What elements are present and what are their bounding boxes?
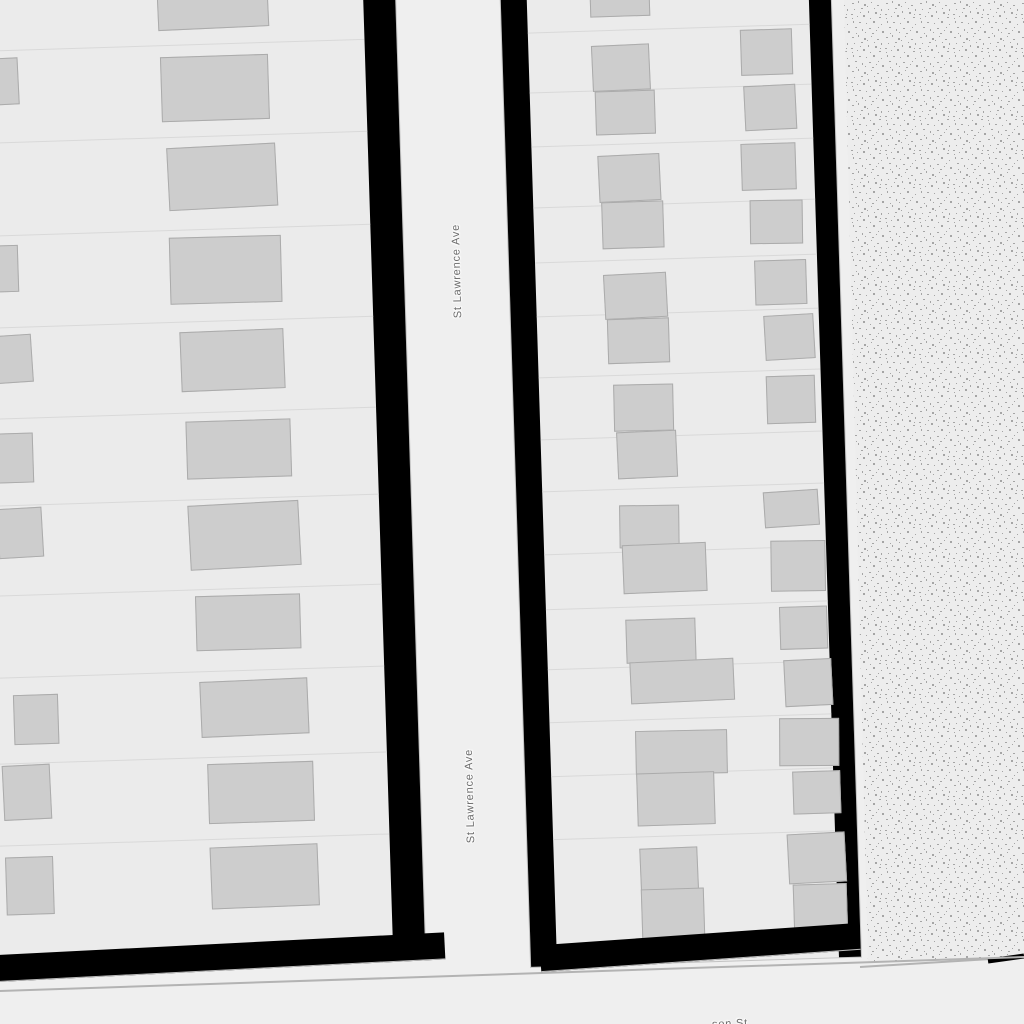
building-footprint: [207, 761, 315, 824]
building-footprint: [2, 764, 53, 821]
cross-street-name-label: son St: [695, 1016, 765, 1024]
parcel-line: [0, 131, 367, 146]
building-footprint: [616, 430, 678, 480]
parcel-line: [0, 407, 376, 422]
building-footprint: [157, 0, 270, 31]
building-footprint: [625, 618, 696, 664]
building-footprint: [622, 542, 708, 594]
building-footprint: [766, 375, 816, 425]
building-footprint: [792, 770, 841, 814]
building-footprint: [179, 328, 285, 392]
building-footprint: [185, 418, 292, 479]
building-footprint: [763, 489, 820, 529]
parcel-line: [0, 224, 370, 239]
building-footprint: [0, 57, 20, 106]
building-footprint: [635, 729, 728, 775]
building-footprint: [783, 658, 833, 707]
building-footprint: [636, 771, 716, 826]
city-block-west: [0, 0, 425, 969]
building-footprint: [210, 843, 320, 909]
building-footprint: [0, 245, 19, 293]
parcel-line: [0, 316, 373, 331]
building-footprint: [195, 593, 301, 651]
building-footprint: [787, 831, 848, 884]
parcel-line: [0, 584, 382, 599]
street-name-label: St Lawrence Ave: [449, 211, 464, 331]
building-footprint: [779, 605, 828, 649]
building-footprint: [0, 507, 44, 560]
building-footprint: [597, 153, 661, 203]
building-footprint: [763, 313, 816, 361]
building-footprint: [740, 28, 793, 76]
building-footprint: [641, 887, 706, 939]
building-footprint: [601, 200, 664, 249]
building-footprint: [591, 43, 651, 92]
building-footprint: [595, 90, 656, 136]
building-footprint: [607, 317, 670, 364]
building-footprint: [589, 0, 650, 18]
building-footprint: [770, 540, 826, 592]
building-footprint: [603, 272, 668, 320]
building-footprint: [187, 500, 301, 571]
building-footprint: [5, 856, 55, 915]
street-name-label: St Lawrence Ave: [462, 736, 477, 856]
building-footprint: [613, 383, 674, 431]
building-footprint: [0, 334, 34, 385]
map-canvas[interactable]: St Lawrence Ave St Lawrence Ave son St: [0, 0, 1024, 1024]
parcel-line: [0, 833, 389, 848]
building-footprint: [629, 658, 735, 705]
building-footprint: [639, 846, 699, 891]
city-block-east: [499, 0, 861, 967]
building-footprint: [619, 505, 680, 549]
parcel-line: [0, 666, 384, 681]
building-footprint: [166, 143, 278, 212]
building-footprint: [779, 718, 839, 766]
parcel-line: [0, 751, 387, 766]
building-footprint: [743, 84, 797, 131]
building-footprint: [13, 694, 60, 745]
building-footprint: [750, 199, 804, 244]
building-footprint: [199, 677, 309, 738]
building-footprint: [740, 142, 796, 191]
building-footprint: [754, 259, 807, 306]
parcel-line: [541, 431, 823, 441]
building-footprint: [0, 432, 34, 483]
building-footprint: [169, 235, 283, 305]
parcel-line: [0, 39, 364, 54]
building-footprint: [160, 54, 270, 122]
